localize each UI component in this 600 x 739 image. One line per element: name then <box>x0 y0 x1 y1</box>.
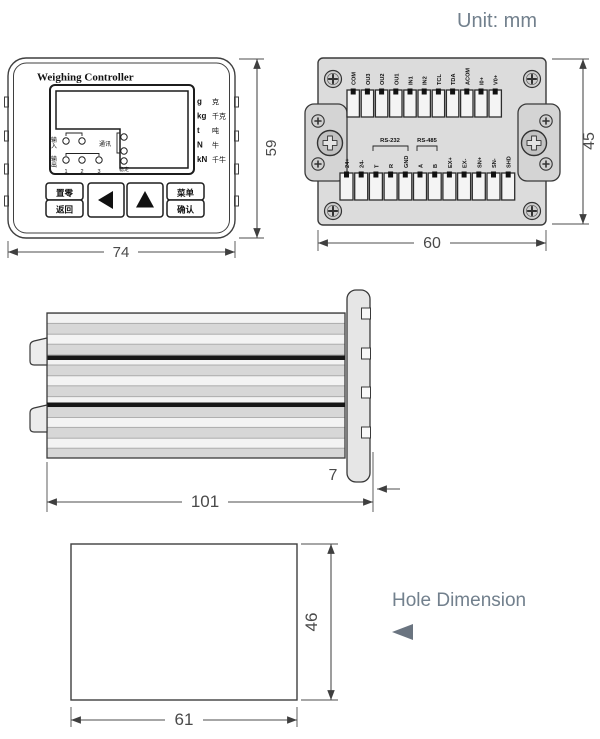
unit-symbol: kg <box>197 112 206 121</box>
terminal-label: COM <box>352 72 358 85</box>
terminal-label: I0+ <box>480 76 486 85</box>
dimension-front-height: 59 <box>239 59 280 238</box>
stable-label: 稳定 <box>119 166 129 173</box>
terminal-label: SHD <box>507 156 513 168</box>
terminal-label: OU1 <box>394 73 400 85</box>
terminal-label: OU2 <box>380 73 386 85</box>
stable-led <box>121 158 127 164</box>
rs232-label: RS-232 <box>380 138 400 144</box>
terminal-label: OU3 <box>366 73 372 85</box>
terminal-label: EX+ <box>448 157 454 168</box>
terminal-label: SN- <box>492 158 498 168</box>
terminal-screw-slot <box>476 172 481 178</box>
input-led-1 <box>63 138 69 144</box>
hole-height-value: 46 <box>302 613 321 632</box>
terminal-screw-slot <box>450 89 455 95</box>
input-label: 输入 <box>51 136 57 150</box>
terminal-screw-slot <box>393 89 398 95</box>
terminal-screw-slot <box>432 172 437 178</box>
front-view: Weighing Controller g 克 kg 千克 t 吨 N 牛 kN… <box>5 58 281 261</box>
terminal-label: V0+ <box>494 74 500 85</box>
output-led-1 <box>63 157 69 163</box>
dimension-hole-width: 61 <box>71 707 297 729</box>
unit-symbol: kN <box>197 155 207 164</box>
product-title: Weighing Controller <box>37 72 134 84</box>
phillips-screw-icon <box>325 71 342 88</box>
terminal-screw-slot <box>464 89 469 95</box>
phillips-screw-icon <box>540 115 552 127</box>
terminal-screw-slot <box>493 89 498 95</box>
terminal-screw-slot <box>365 89 370 95</box>
hole-dimension-caption: Hole Dimension <box>392 590 526 611</box>
heatsink-body <box>47 313 345 458</box>
terminal-label: SN+ <box>477 156 483 168</box>
rear-height-value: 45 <box>581 132 598 150</box>
output-led-3 <box>96 157 102 163</box>
rear-view: COMOU3OU2OU1IN1IN2TCLTDAACOMI0+V0+ 24+24… <box>305 58 598 252</box>
side-length-value: 101 <box>191 492 219 511</box>
terminal-screw-slot <box>344 172 349 178</box>
output-num-3: 3 <box>97 169 100 175</box>
terminal-screw-slot <box>422 89 427 95</box>
terminal-label: IN1 <box>409 76 415 85</box>
output-num-2: 2 <box>80 169 83 175</box>
phillips-screw-icon <box>325 203 342 220</box>
terminal-screw-slot <box>462 172 467 178</box>
unit-cjk: 吨 <box>212 126 219 135</box>
confirm-button-label: 确认 <box>177 205 195 215</box>
terminal-label: EX- <box>463 159 469 168</box>
unit-cjk: 千牛 <box>212 155 226 164</box>
phillips-screw-icon <box>312 115 324 127</box>
led-indicators: 输入 通讯 输出 1 2 3 稳定 <box>51 133 129 175</box>
terminal-screw-slot <box>418 172 423 178</box>
terminal-screw-slot <box>359 172 364 178</box>
phillips-screw-icon <box>540 158 552 170</box>
heatsink-groove <box>47 403 345 408</box>
dimension-side-length: 101 <box>47 452 373 512</box>
terminal-screw-slot <box>388 172 393 178</box>
phillips-screw-icon <box>318 131 343 156</box>
terminal-screw-slot <box>447 172 452 178</box>
zero-button-label: 置零 <box>56 188 74 198</box>
terminal-screw-slot <box>479 89 484 95</box>
phillips-screw-icon <box>524 71 541 88</box>
phillips-screw-icon <box>524 203 541 220</box>
unit-cjk: 千克 <box>212 112 226 121</box>
hole-width-value: 61 <box>175 710 194 729</box>
cutout-rect <box>71 544 297 700</box>
terminal-screw-slot <box>506 172 511 178</box>
terminal-screw-slot <box>351 89 356 95</box>
terminal-label: IN2 <box>423 76 429 85</box>
terminal-screw-slot <box>436 89 441 95</box>
bezel-depth-value: 7 <box>329 467 338 484</box>
display-window <box>56 91 188 168</box>
unit-symbol: t <box>197 126 200 135</box>
dimension-drawing: Unit: mm Weighing Controller g 克 kg 千克 t… <box>0 0 600 734</box>
unit-cjk: 牛 <box>212 141 219 150</box>
output-led-2 <box>79 157 85 163</box>
comm-label: 通讯 <box>99 140 111 148</box>
terminal-label: ACOM <box>465 68 471 85</box>
terminal-screw-slot <box>403 172 408 178</box>
menu-button-label: 菜单 <box>176 188 195 198</box>
rs485-label: RS-485 <box>417 138 437 144</box>
front-buttons: 置零 返回 菜单 确认 <box>46 183 204 217</box>
terminal-label: TCL <box>437 74 443 85</box>
side-view: 101 7 <box>30 290 400 512</box>
unit-symbol: g <box>197 97 202 106</box>
terminal-label: R <box>389 164 395 168</box>
phillips-screw-icon <box>312 158 324 170</box>
unit-symbol: N <box>197 141 203 150</box>
terminal-screw-slot <box>373 172 378 178</box>
unit-legend: g 克 kg 千克 t 吨 N 牛 kN 千牛 <box>197 97 226 164</box>
terminal-screw-slot <box>491 172 496 178</box>
back-button-label: 返回 <box>56 205 73 215</box>
unit-cjk: 克 <box>212 98 219 106</box>
hole-view: 61 46 Hole Dimension <box>71 544 526 729</box>
front-width-value: 74 <box>113 244 130 261</box>
terminal-label: TDA <box>451 74 457 86</box>
terminal-screw-slot <box>379 89 384 95</box>
terminal-label: 24+ <box>345 158 351 168</box>
comm-led-1 <box>121 134 127 140</box>
dimension-front-width: 74 <box>8 241 235 261</box>
hole-dimension-arrow-icon <box>392 624 413 640</box>
terminal-label: 24- <box>360 160 366 168</box>
unit-note: Unit: mm <box>457 10 537 32</box>
output-label: 输出 <box>51 155 57 169</box>
terminal-screw-slot <box>408 89 413 95</box>
terminal-block-tab <box>30 338 47 365</box>
terminal-block-tab <box>30 405 47 432</box>
output-num-1: 1 <box>64 169 67 175</box>
dimension-hole-height: 46 <box>301 544 338 700</box>
terminal-label: GND <box>404 156 410 168</box>
rear-width-value: 60 <box>423 235 441 252</box>
terminal-label: T <box>374 164 380 168</box>
front-height-value: 59 <box>263 140 280 157</box>
terminal-label: B <box>433 164 439 168</box>
terminal-label: A <box>419 164 425 168</box>
comm-led-2 <box>121 148 127 154</box>
dimension-rear-width: 60 <box>318 230 546 252</box>
heatsink-groove <box>47 356 345 361</box>
phillips-screw-icon <box>522 131 547 156</box>
input-led-2 <box>79 138 85 144</box>
